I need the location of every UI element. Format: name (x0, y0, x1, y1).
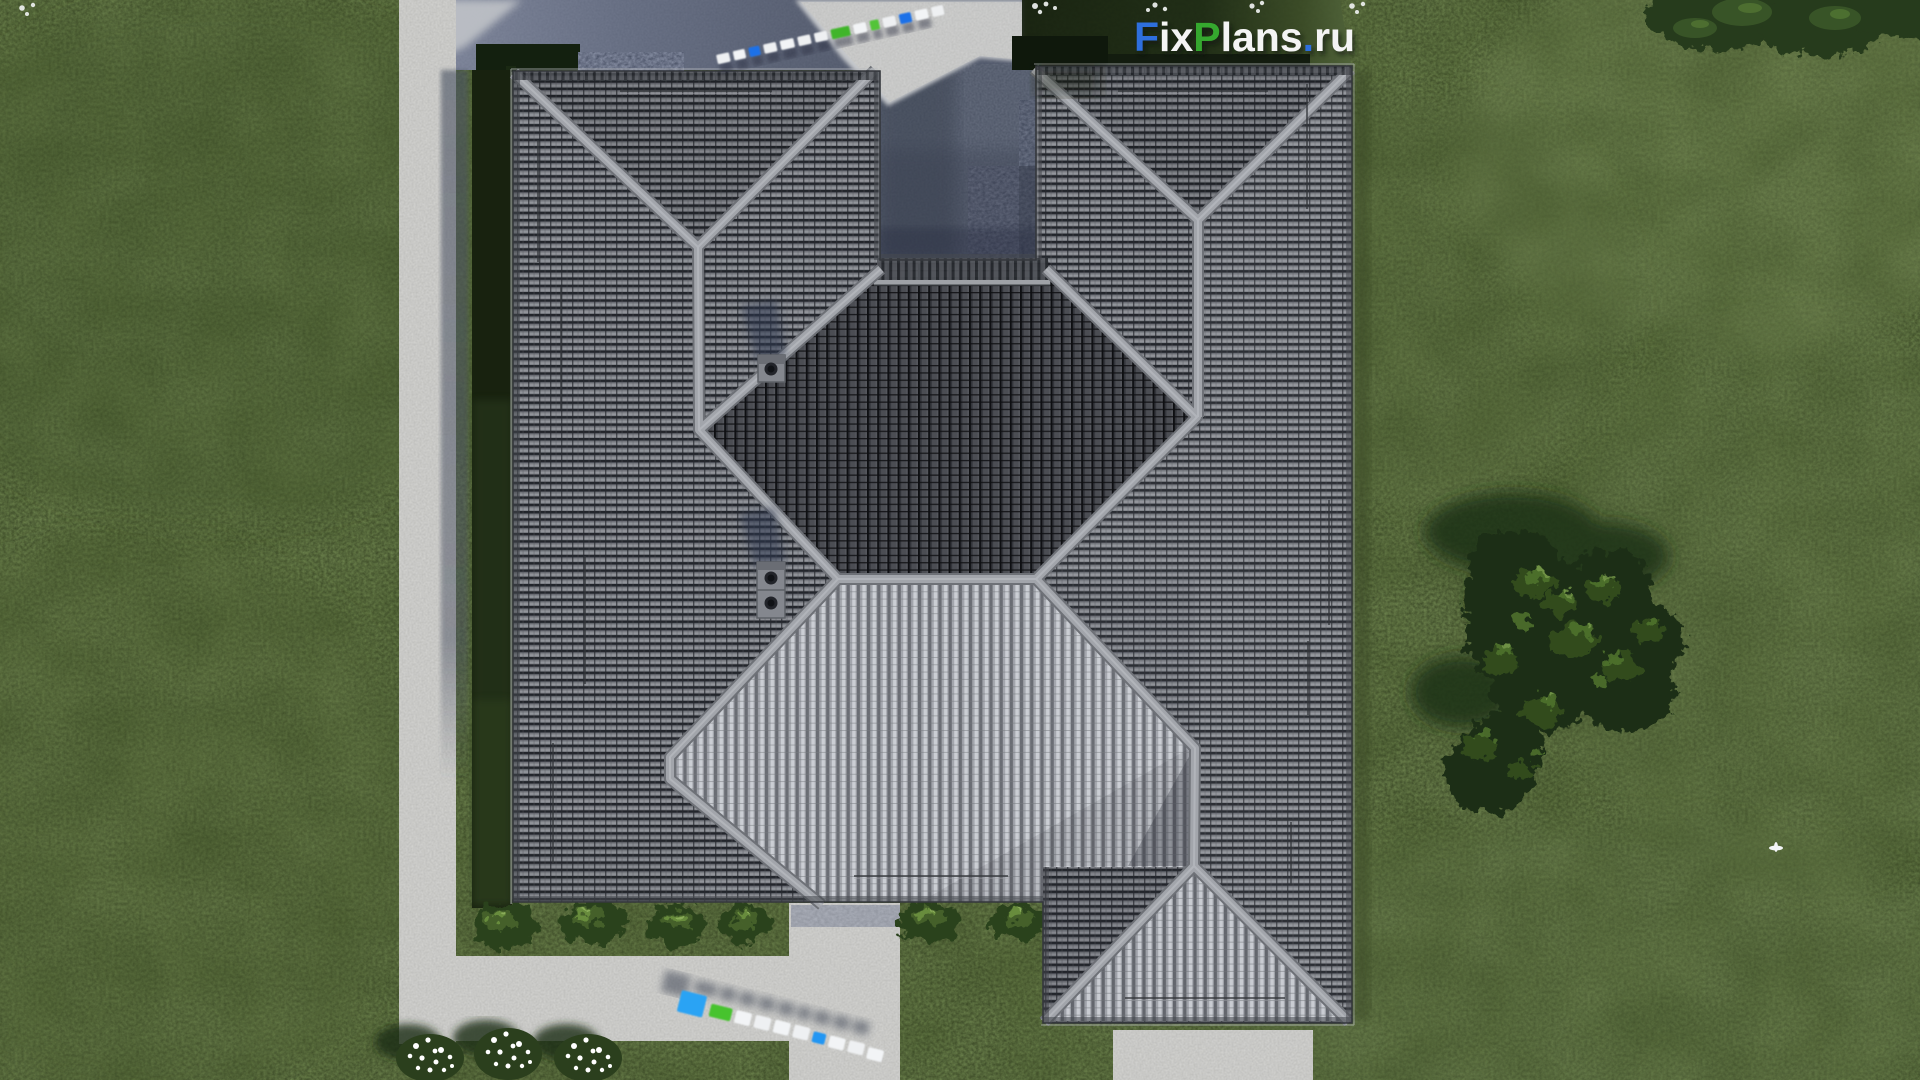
svg-text:FixPlans.ru: FixPlans.ru (1134, 14, 1355, 60)
